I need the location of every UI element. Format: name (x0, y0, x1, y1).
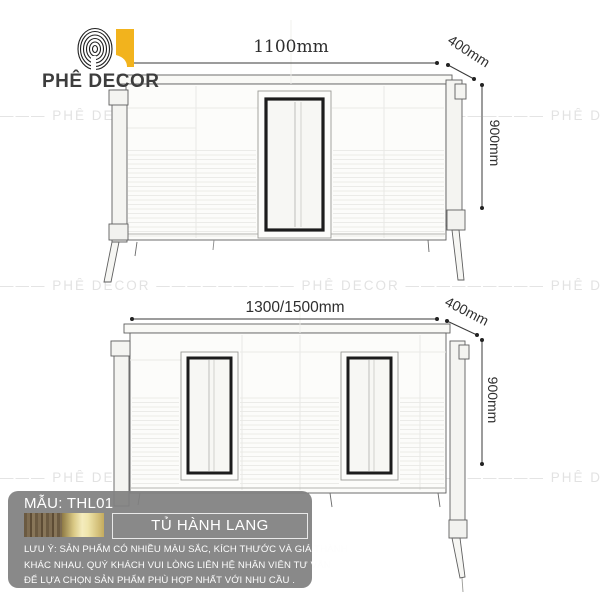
note-line: KHÁC NHAU. QUÝ KHÁCH VUI LÒNG LIÊN HỆ NH… (24, 558, 308, 574)
product-name-box: TỦ HÀNH LANG (112, 513, 308, 539)
gold-color-swatch (62, 513, 104, 537)
brand-name: PHÊ DECOR (42, 71, 172, 93)
bottom-height-dimension: 900mm (485, 372, 501, 428)
note-line: LƯU Ý: SẢN PHẨM CÓ NHIỀU MÀU SẮC, KÍCH T… (24, 542, 308, 558)
product-dimension-sheet: ——— PHÊ DECOR ————————— PHÊ DECOR ——————… (0, 0, 600, 600)
model-code-label: MẪU: THL01 (24, 495, 113, 512)
product-info-panel: MẪU: THL01 TỦ HÀNH LANG LƯU Ý: SẢN PHẨM … (8, 491, 312, 588)
top-height-dimension: 900mm (487, 115, 503, 171)
top-view-drawing (104, 20, 484, 282)
note-line: ĐỂ LỰA CHỌN SẢN PHẨM PHÙ HỢP NHẤT VỚI NH… (24, 573, 308, 589)
top-view-door-panel (258, 91, 331, 238)
fingerprint-logo-icon (74, 26, 138, 74)
bottom-view-door-panel-right (341, 352, 398, 480)
top-width-dimension: 1100mm (228, 37, 354, 57)
wood-color-swatch (24, 513, 62, 537)
bottom-width-dimension: 1300/1500mm (225, 299, 365, 317)
product-notes: LƯU Ý: SẢN PHẨM CÓ NHIỀU MÀU SẮC, KÍCH T… (24, 542, 308, 589)
product-name: TỦ HÀNH LANG (151, 517, 269, 534)
bottom-view-door-panel-left (181, 352, 238, 480)
